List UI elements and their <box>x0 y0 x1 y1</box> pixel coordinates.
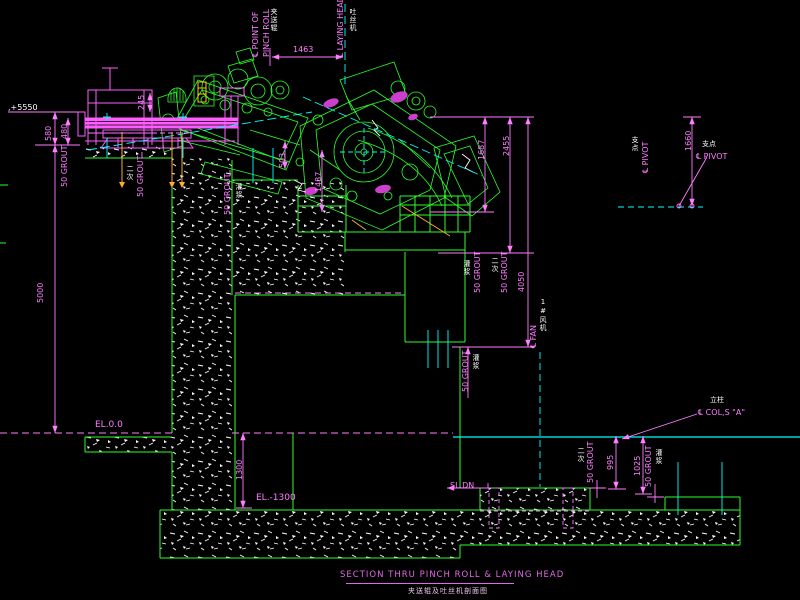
grout-note-8-zh: 灌浆 <box>655 449 663 465</box>
pivot-label-vertical: ℄ PIVOT <box>641 142 650 173</box>
pinch-roll-label-zh: 夹送辊 <box>270 8 278 32</box>
dim-580: 580 <box>44 126 53 141</box>
drawing-title: SECTION THRU PINCH ROLL & LAYING HEAD <box>340 570 520 580</box>
dim-2455: 2455 <box>502 136 511 156</box>
dim-1463: 1463 <box>293 45 313 54</box>
dim-995: 995 <box>606 455 615 470</box>
fan-centerline-label: ℄ FAN <box>529 325 538 348</box>
grout-note-2: 50 GROUT <box>136 155 145 197</box>
laying-head-centerline-label: ℄ LAYING HEAD <box>336 0 345 58</box>
drawing-linework <box>0 0 800 600</box>
concrete-hatch-regions <box>85 142 740 558</box>
dim-503: 503 <box>278 153 287 168</box>
grout-note-3-zh: 灌浆 <box>235 183 243 199</box>
grout-note-2-zh: 二次 <box>126 165 134 181</box>
dim-245: 245 <box>137 95 146 110</box>
grout-note-8: 50 GROUT <box>644 445 653 487</box>
grout-note-7: 50 GROUT <box>586 441 595 483</box>
laying-head-label-zh: 吐丝机 <box>349 8 357 32</box>
dim-1025: 1025 <box>633 456 642 476</box>
grout-note-7-zh: 二次 <box>577 447 585 463</box>
dim-4050: 4050 <box>517 272 526 292</box>
grout-note-5-zh: 二次 <box>491 257 499 273</box>
grout-note-3: 50 GROUT <box>223 173 232 215</box>
grout-note-6-zh: 灌浆 <box>472 354 480 370</box>
pivot-label-horizontal: ℄ PIVOT <box>696 152 727 161</box>
col-a-label: ℄ COL,S "A" <box>698 408 745 417</box>
pivot-label-zh-horizontal: 支点 <box>702 140 716 148</box>
el-minus-1300-label: EL.-1300 <box>256 494 296 503</box>
level-5550: ,+5550 <box>8 103 38 112</box>
grout-note-6: 50 GROUT <box>461 350 470 392</box>
cad-drawing-canvas: 1463 ,+5550 580 480 5000 245 503 1487 16… <box>0 0 800 600</box>
grout-note-1: 50 GROUT <box>60 145 69 187</box>
dim-1687: 1687 <box>477 140 486 160</box>
fan-label-zh: 1#风机 <box>539 298 547 332</box>
drawing-title-zh: 夹送辊及吐丝机剖面图 <box>408 586 488 596</box>
grout-note-5: 50 GROUT <box>500 251 509 293</box>
pivot-label-zh-vertical: 支点 <box>631 136 639 152</box>
foundation-outline <box>0 158 740 558</box>
grout-note-4-zh: 灌浆 <box>463 260 471 276</box>
grout-note-4: 50 GROUT <box>473 251 482 293</box>
dim-5000: 5000 <box>36 283 45 303</box>
dim-1660: 1660 <box>684 131 693 151</box>
dim-1300: 1300 <box>235 460 244 480</box>
col-a-label-zh: 立柱 <box>710 396 724 404</box>
title-underline <box>346 583 514 584</box>
slope-down-label: SL.DN <box>450 481 474 490</box>
dim-1487: 1487 <box>314 172 323 192</box>
dim-480: 480 <box>60 124 69 139</box>
el-0-0-label: EL.0.0 <box>95 421 123 430</box>
point-of-label: ℄ POINT OF <box>251 12 260 57</box>
